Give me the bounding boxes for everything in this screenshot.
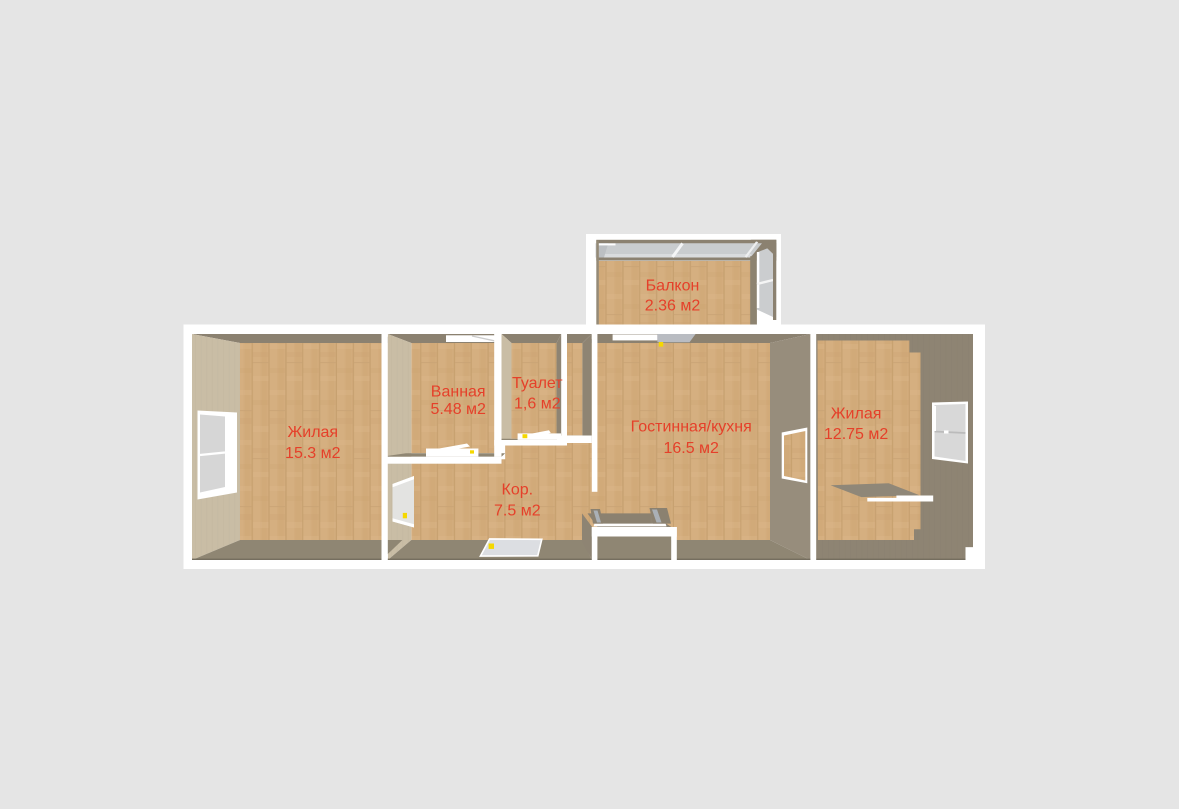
svg-text:15.3 м2: 15.3 м2: [285, 445, 341, 462]
svg-text:Кор.: Кор.: [502, 482, 534, 499]
svg-text:16.5 м2: 16.5 м2: [663, 440, 719, 457]
svg-text:12.75 м2: 12.75 м2: [824, 426, 888, 443]
svg-text:2.36 м2: 2.36 м2: [645, 298, 701, 315]
svg-text:Жилая: Жилая: [831, 405, 882, 422]
svg-text:5.48 м2: 5.48 м2: [430, 401, 486, 418]
svg-text:7.5 м2: 7.5 м2: [494, 502, 541, 519]
svg-text:Ванная: Ванная: [431, 383, 486, 400]
svg-text:Гостинная/кухня: Гостинная/кухня: [631, 419, 752, 436]
svg-text:Жилая: Жилая: [287, 424, 338, 441]
svg-text:Туалет: Туалет: [512, 375, 563, 392]
svg-text:1,6 м2: 1,6 м2: [514, 395, 561, 412]
svg-text:Балкон: Балкон: [646, 278, 700, 295]
